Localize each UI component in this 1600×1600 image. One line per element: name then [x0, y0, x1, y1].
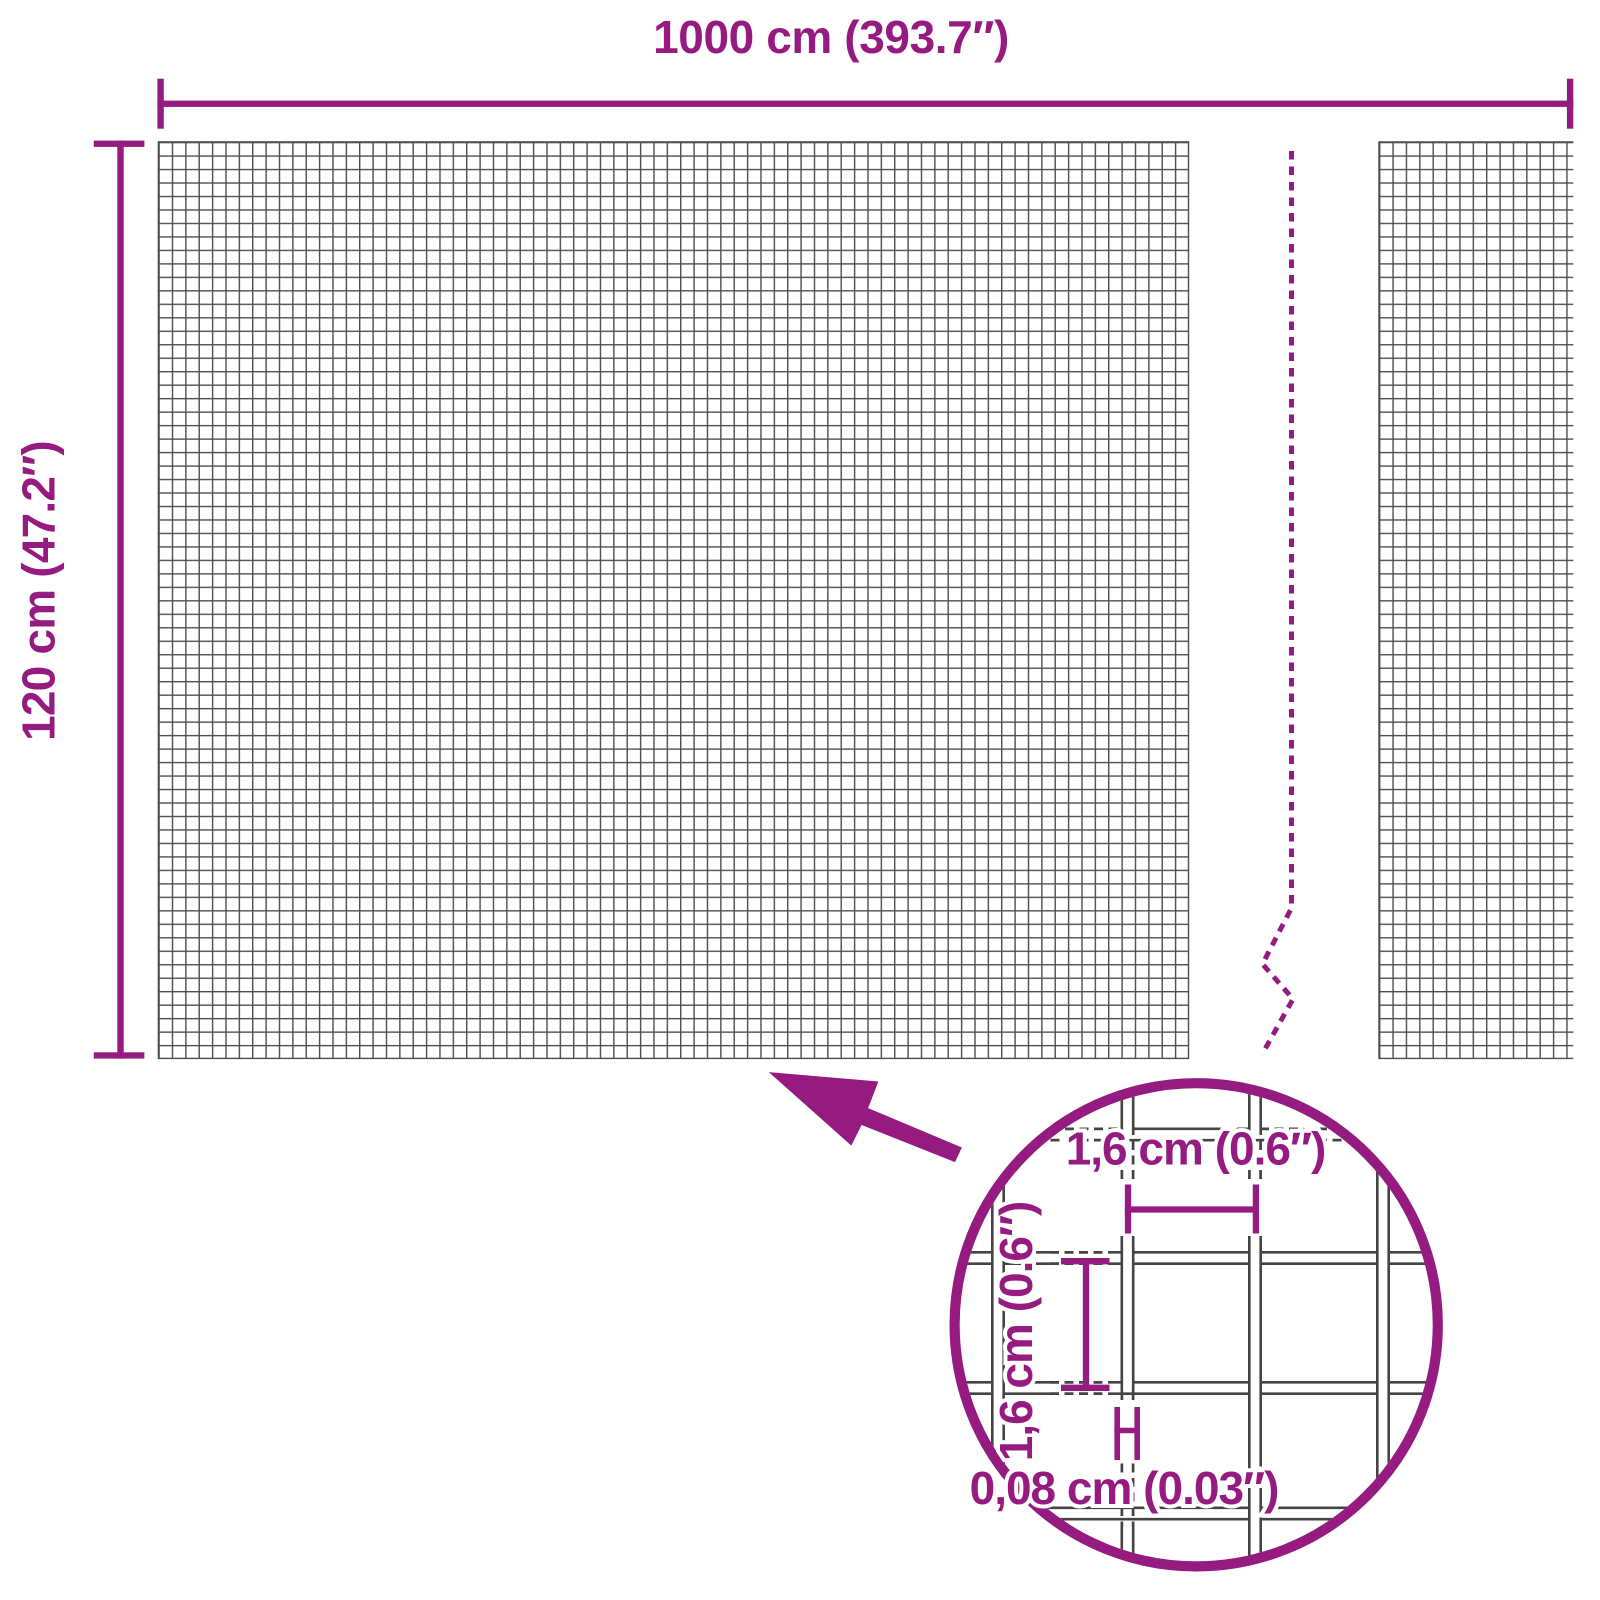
svg-text:1,6 cm (0.6″): 1,6 cm (0.6″): [1066, 1123, 1326, 1175]
svg-text:120 cm (47.2″): 120 cm (47.2″): [13, 441, 65, 741]
svg-text:1,6 cm (0.6″): 1,6 cm (0.6″): [990, 1202, 1042, 1462]
svg-text:1000 cm (393.7″): 1000 cm (393.7″): [653, 11, 1009, 63]
svg-text:0,08 cm (0.03″): 0,08 cm (0.03″): [970, 1462, 1279, 1514]
